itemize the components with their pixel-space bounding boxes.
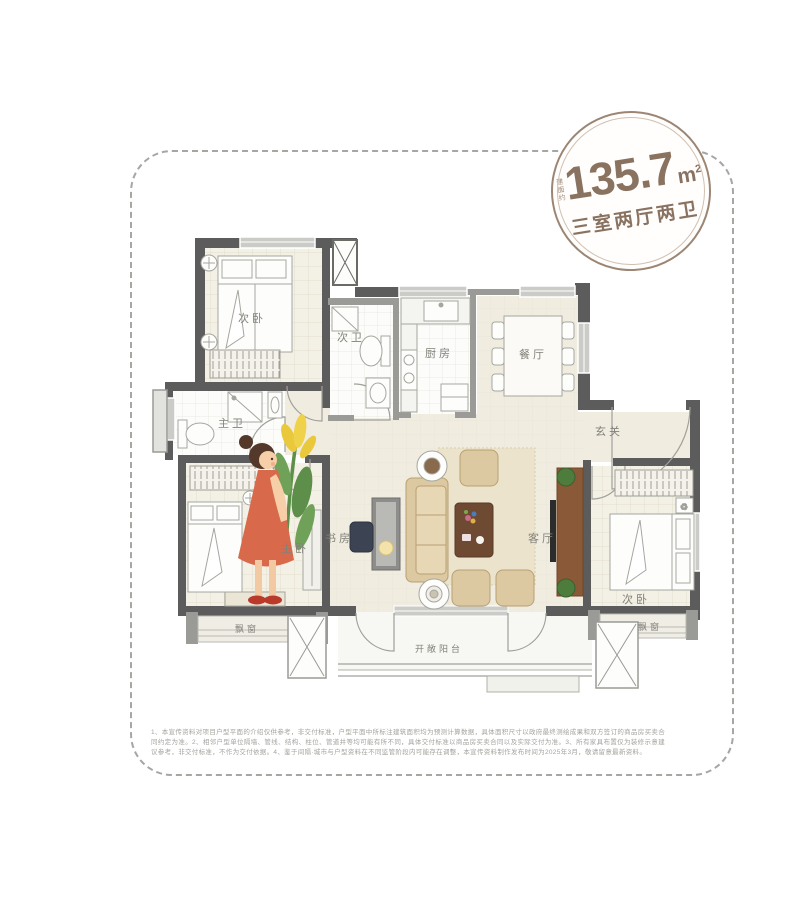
area-prefix-label: 建面约 [555, 178, 566, 203]
sofa [406, 478, 448, 582]
label-kitchen: 厨房 [425, 347, 453, 360]
bedroom2-furniture: ♻ [610, 470, 694, 590]
wardrobe-bedroom2 [615, 470, 693, 496]
wardrobe-bedroom1 [210, 350, 280, 378]
label-bedroom-master: 主卧 [281, 542, 309, 555]
label-bay-left: 飘窗 [235, 623, 259, 634]
floor-plan: ♻ 次卧 次卫 厨房 [140, 228, 715, 698]
label-balcony: 开敞阳台 [415, 643, 463, 654]
label-foyer: 玄关 [595, 424, 623, 438]
disclaimer-text: 1、本宣传资料对项目户型平面的介绍仅供参考，非交付标准，户型平面中所标注建筑面积… [151, 728, 665, 758]
svg-text:♻: ♻ [680, 502, 688, 512]
label-bedroom-right: 次卧 [622, 592, 650, 606]
label-study: 书房 [325, 532, 353, 545]
label-bedroom-top-left: 次卧 [238, 311, 266, 325]
area-unit: m2 [676, 163, 704, 188]
label-dining: 餐厅 [519, 347, 547, 361]
label-bay-right: 飘窗 [638, 621, 662, 632]
floorplan-page: 建面约 135.7 m2 三室两厅两卫 [0, 0, 800, 907]
area-badge-content: 建面约 135.7 m2 三室两厅两卫 [553, 140, 710, 242]
area-value: 135.7 [562, 144, 678, 207]
label-bath-master: 主卫 [218, 417, 246, 430]
label-bath-second: 次卫 [337, 330, 365, 344]
layout-type-label: 三室两厅两卫 [561, 192, 709, 241]
label-living: 客厅 [528, 531, 556, 545]
coffee-table [455, 503, 493, 557]
